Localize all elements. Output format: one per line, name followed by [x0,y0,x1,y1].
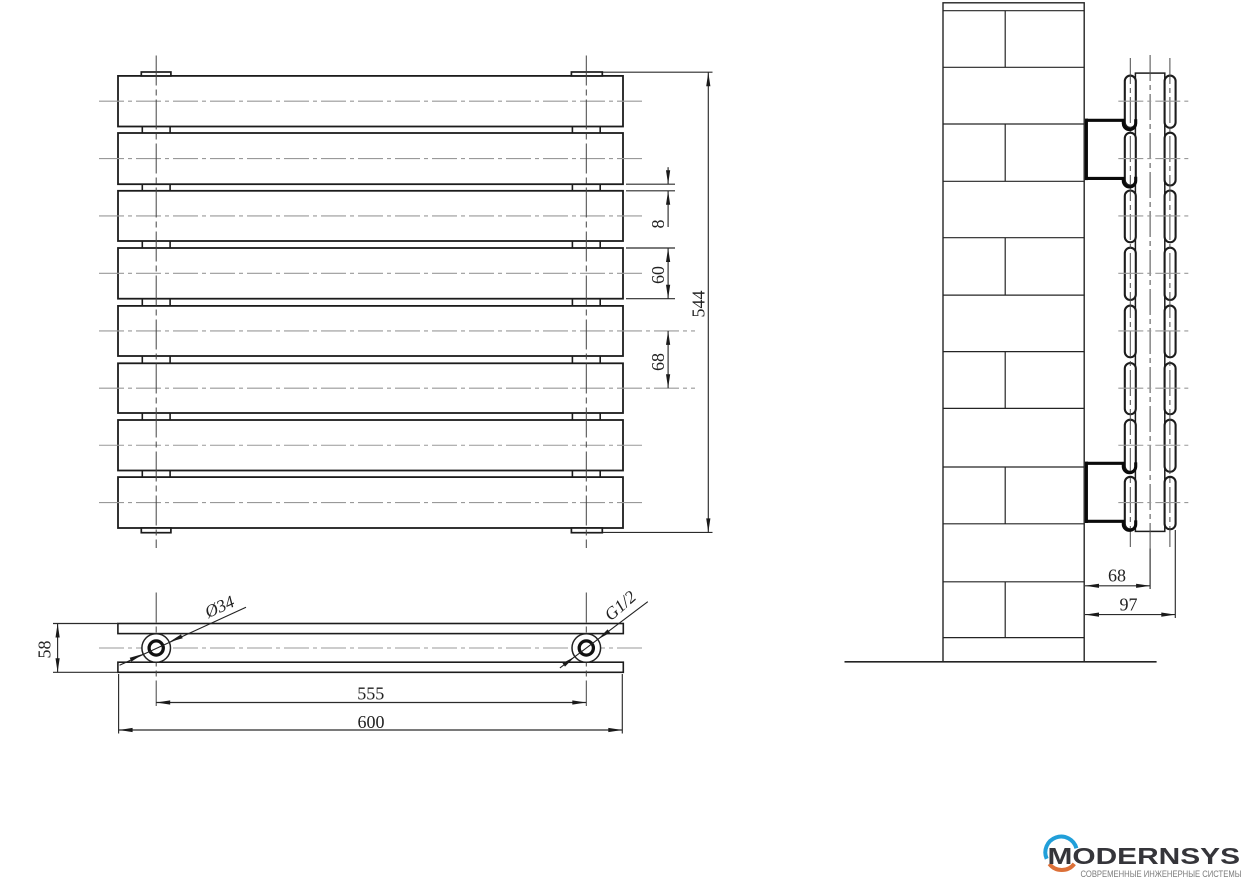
svg-text:97: 97 [1120,595,1138,615]
svg-text:544: 544 [689,291,709,318]
svg-text:60: 60 [648,266,668,284]
svg-text:68: 68 [1108,565,1126,585]
svg-text:MODERNSYS: MODERNSYS [1048,843,1241,869]
svg-text:600: 600 [358,712,385,732]
svg-text:G1/2: G1/2 [600,586,640,624]
svg-text:68: 68 [648,353,668,371]
svg-text:555: 555 [357,684,384,704]
svg-text:Ø34: Ø34 [201,591,238,622]
svg-text:8: 8 [648,220,668,229]
svg-text:СОВРЕМЕННЫЕ ИНЖЕНЕРНЫЕ СИСТЕМЫ: СОВРЕМЕННЫЕ ИНЖЕНЕРНЫЕ СИСТЕМЫ [1081,869,1242,878]
svg-text:58: 58 [35,641,55,659]
